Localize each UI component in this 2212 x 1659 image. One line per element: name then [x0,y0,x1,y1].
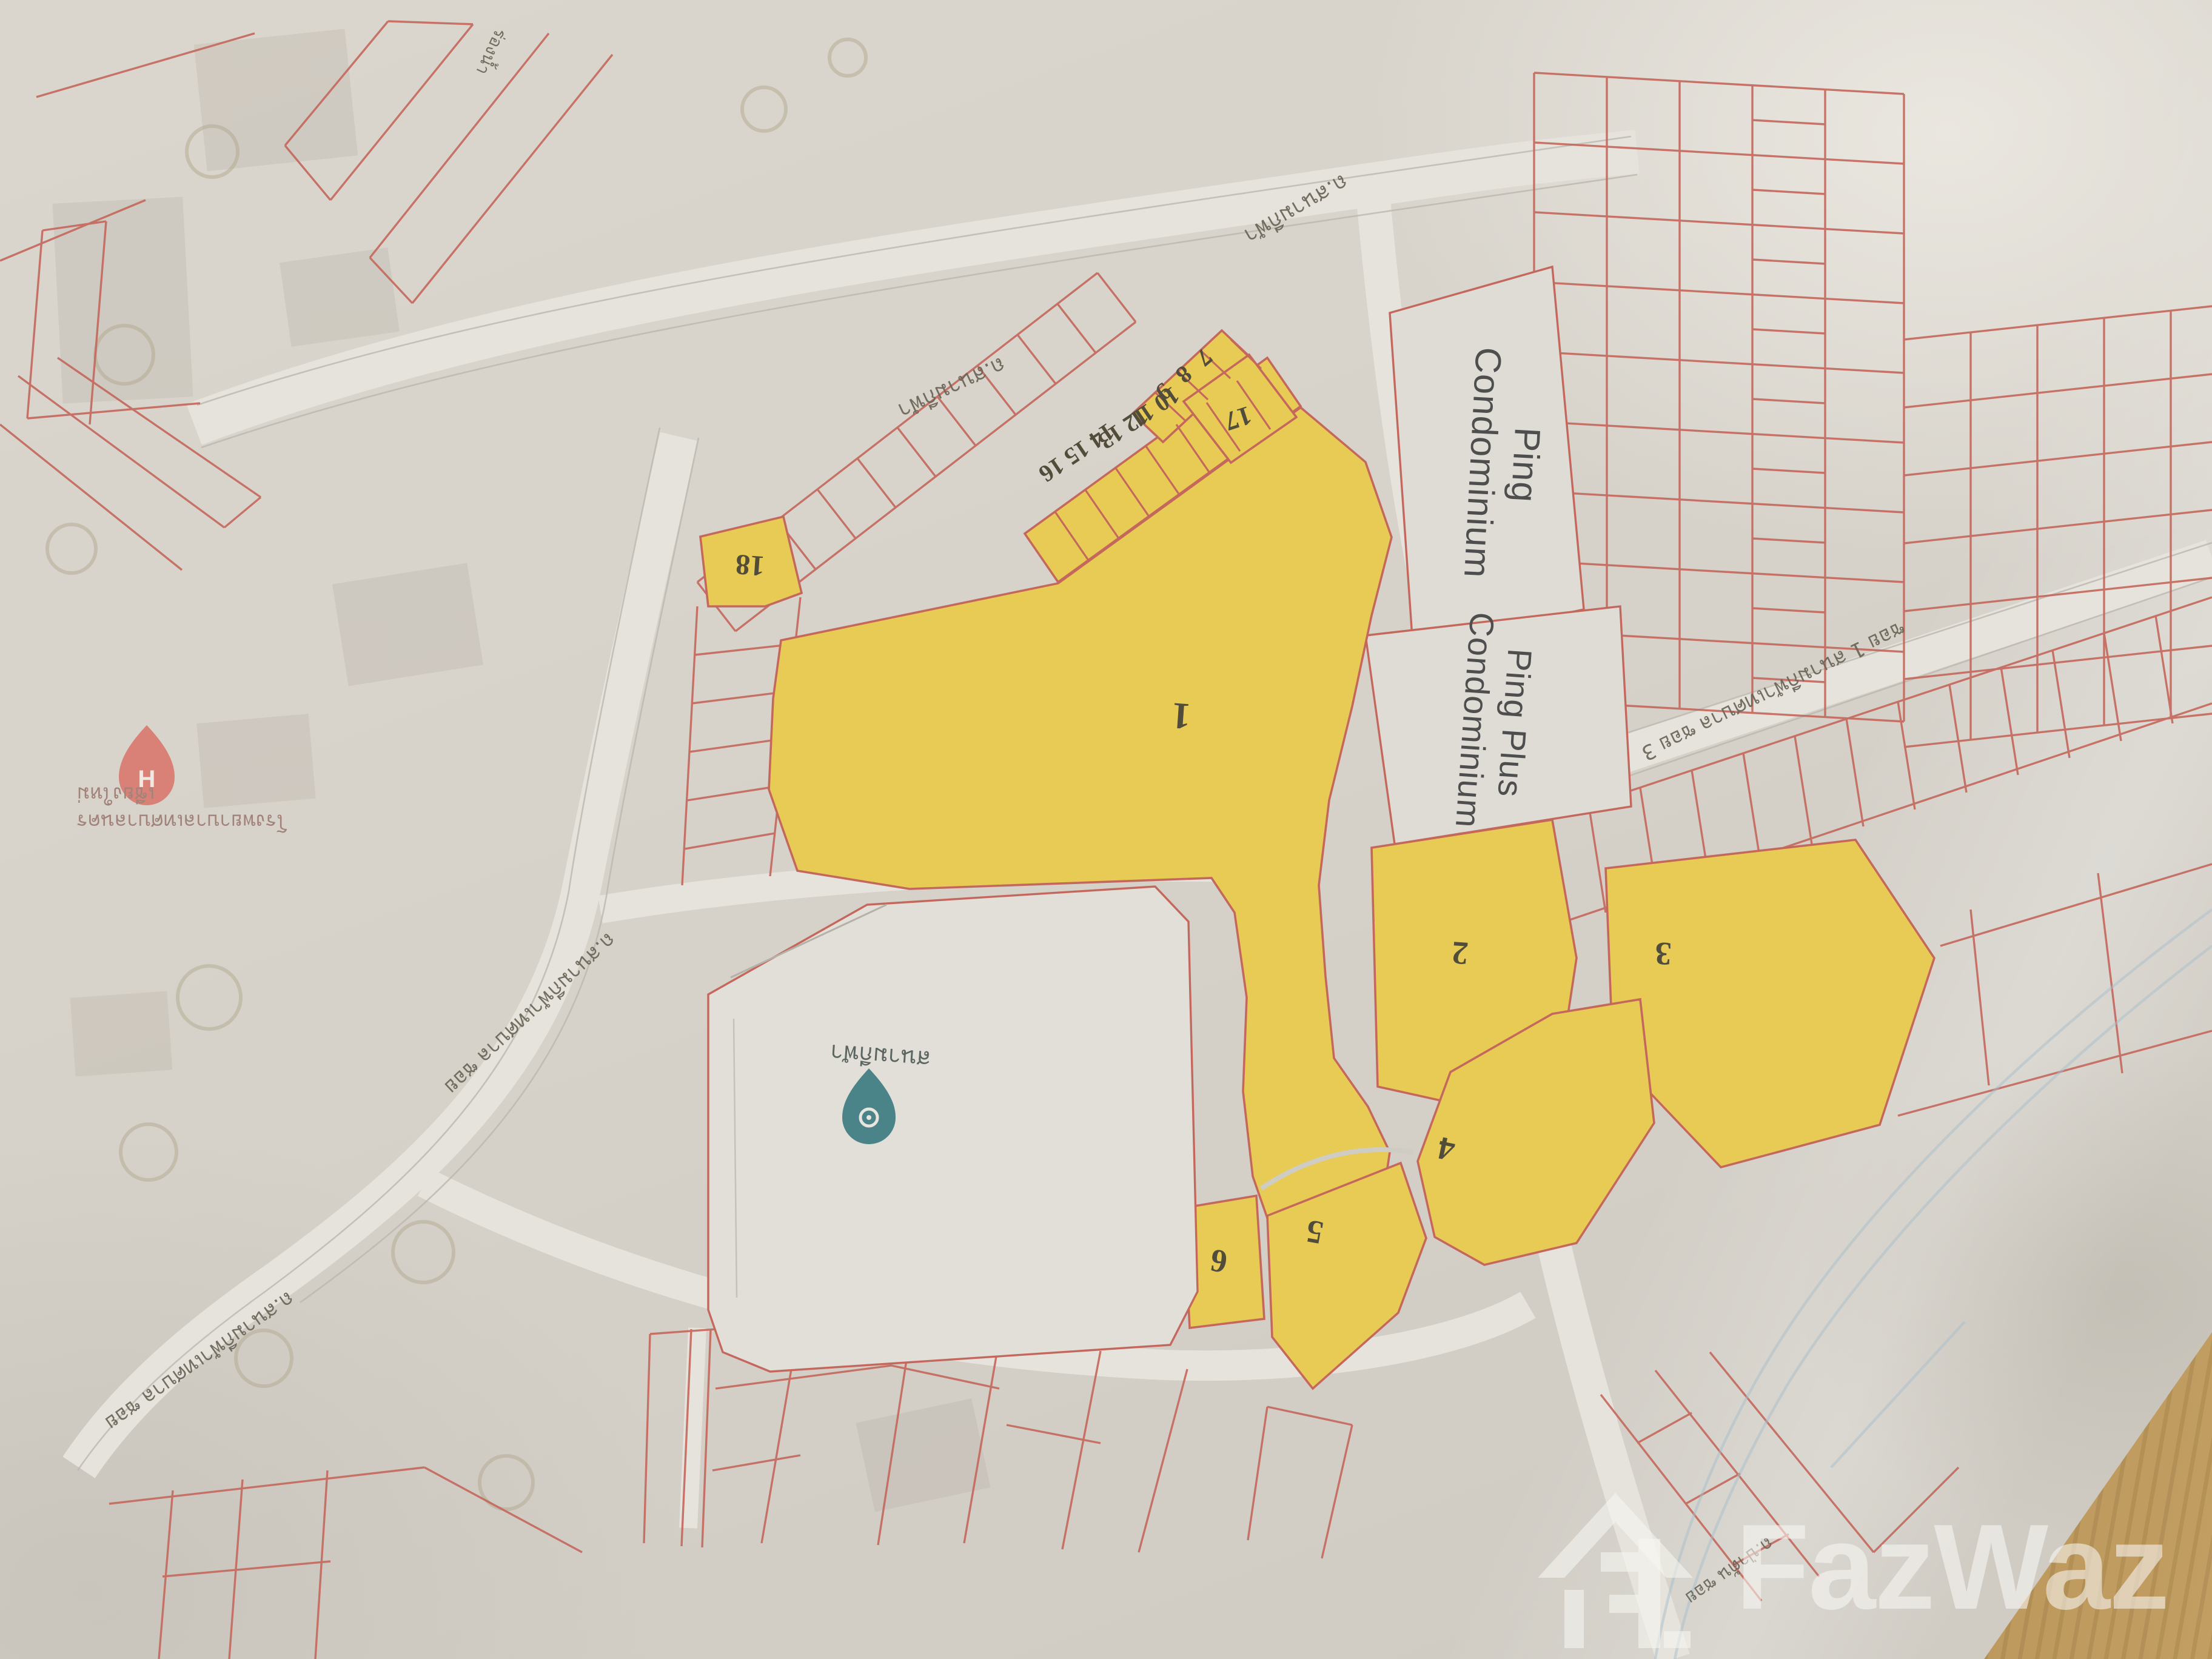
hospital-label: โรงพยาบาลเทศบาลนคร เชียงใหม่ [77,780,287,834]
photo-of-cadastral-map: H 1 2 3 4 5 6 18 17 7 8 9 10 11 12 13 14… [0,0,2212,1659]
plot-3-label: 3 [1654,935,1672,973]
hospital-label-line1: โรงพยาบาลเทศบาลนคร [77,808,287,835]
ping-plus-condominium-label: Ping Plus Condominium [1447,611,1543,833]
plot-18-label: 18 [734,548,766,583]
map-linework: H [0,0,2212,1659]
hospital-label-line2: เชียงใหม่ [77,780,287,808]
stadium-parcel [708,886,1198,1372]
stadium-label: สนามกีฬา [829,1034,932,1078]
plot-1-label: 1 [1170,694,1192,738]
ping-condominium-label: Ping Condominium [1455,346,1552,581]
plot-3-shape [1606,840,1934,1167]
fazwaz-watermark-text: FazWaz [1735,1498,2168,1637]
plot-2-label: 2 [1450,934,1469,973]
